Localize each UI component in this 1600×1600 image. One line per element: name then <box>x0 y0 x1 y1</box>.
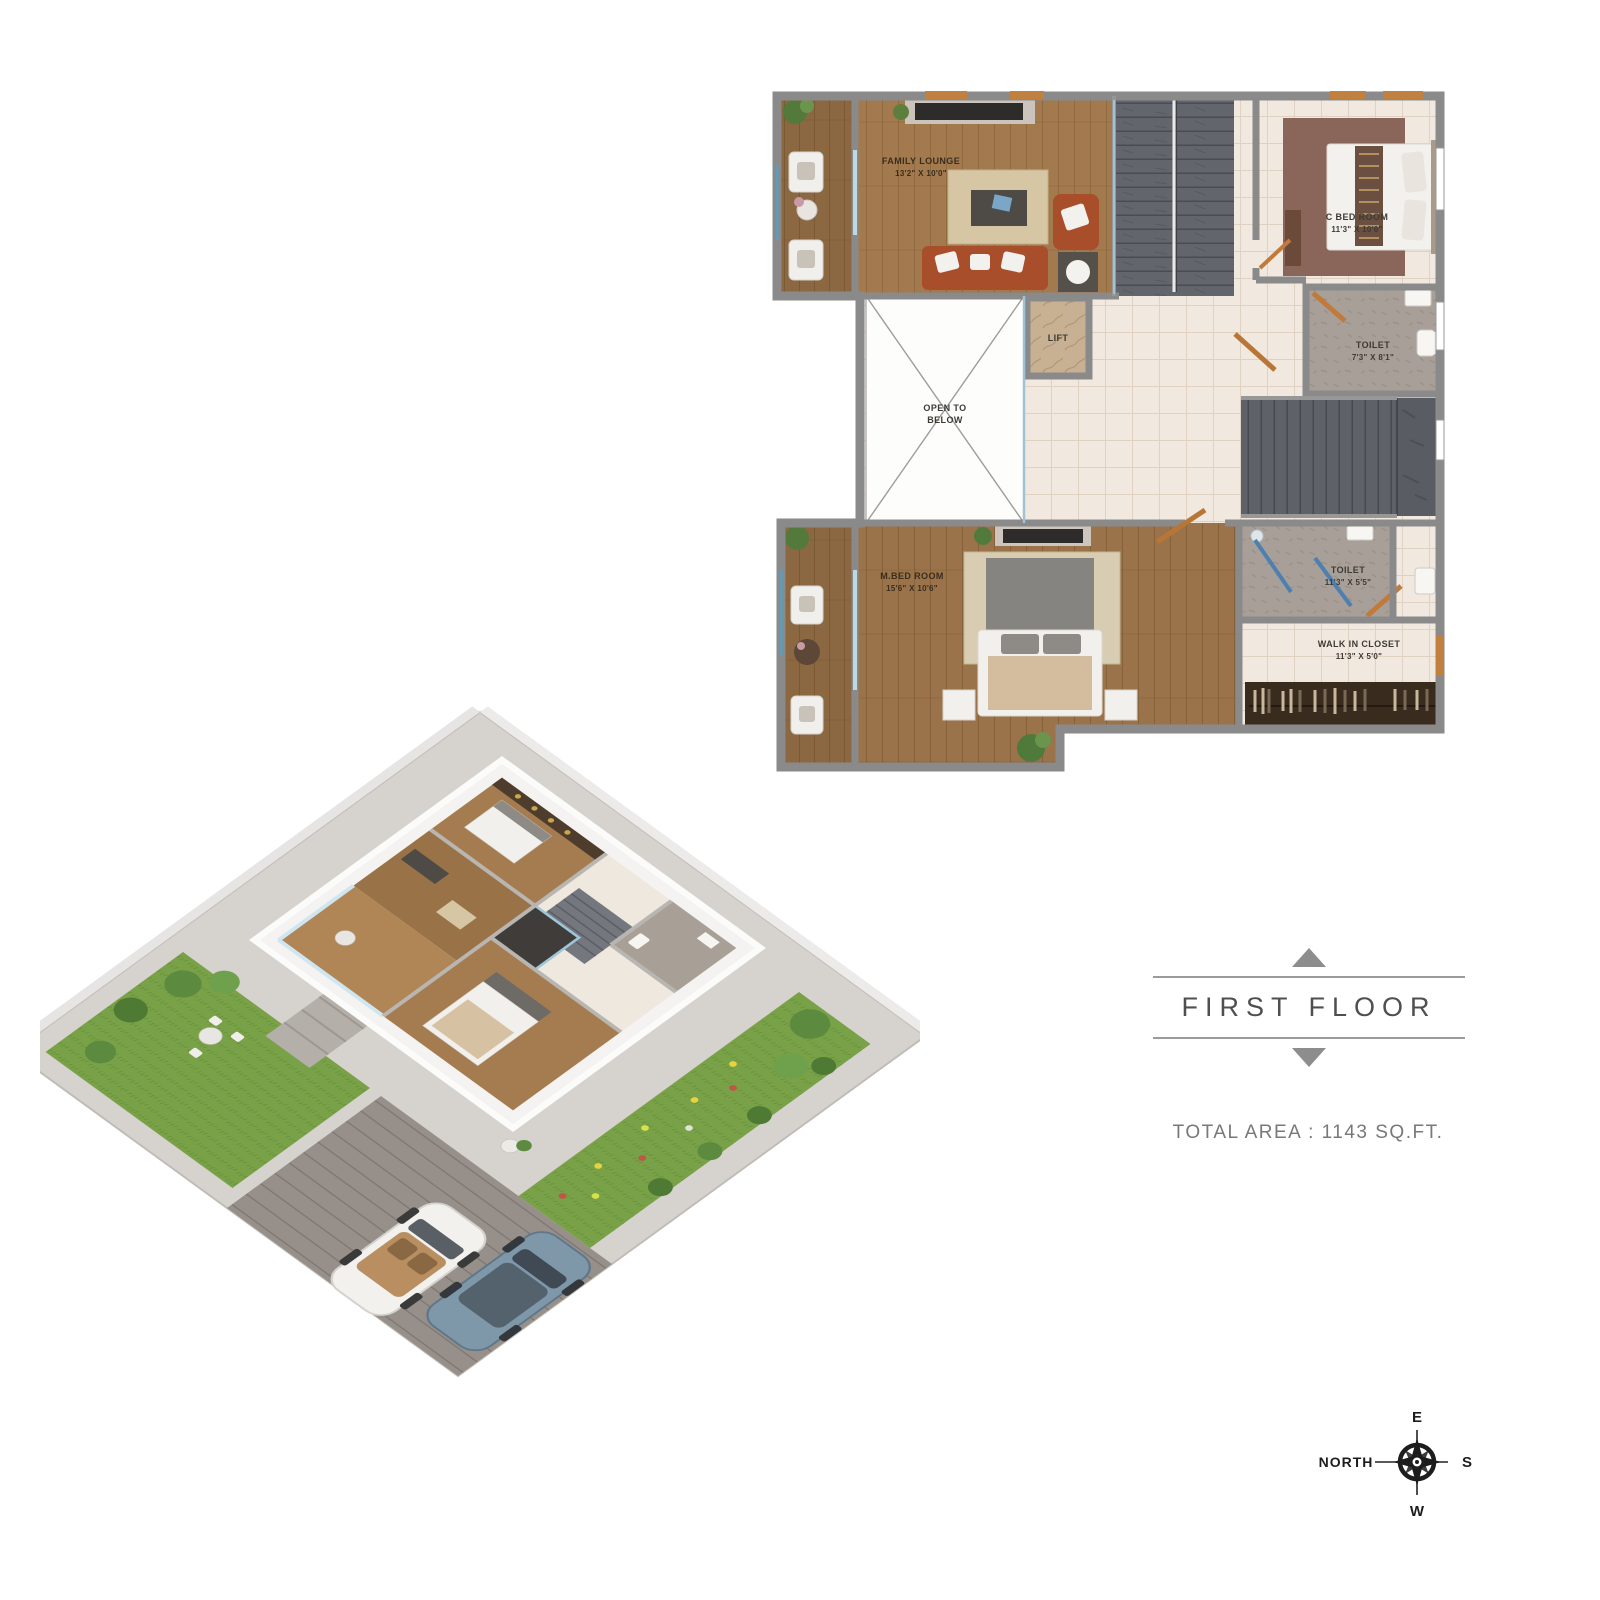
label-toilet1: TOILET <box>1356 340 1390 350</box>
compass-east-label: E <box>1412 1409 1422 1426</box>
walk-in-closet-room <box>1245 682 1440 729</box>
dims-walk-in-closet: 11'3" X 5'0" <box>1336 652 1383 661</box>
total-area-text: TOTAL AREA : 1143 SQ.FT. <box>1108 1122 1508 1144</box>
family-lounge-room <box>855 96 1114 296</box>
label-walk-in-closet: WALK IN CLOSET <box>1318 639 1401 649</box>
banner-rule-top <box>1153 976 1465 978</box>
triangle-down-icon <box>1292 1048 1326 1067</box>
house-3d-render <box>40 640 920 1520</box>
label-lift: LIFT <box>1048 333 1069 343</box>
compass-icon <box>1375 1430 1448 1495</box>
compass-north-label: NORTH <box>1319 1454 1374 1470</box>
floor-title: FIRST FLOOR <box>1153 992 1465 1023</box>
dims-m-bedroom: 15'6" X 10'6" <box>886 584 938 593</box>
triangle-up-icon <box>1292 948 1326 967</box>
label-open-to-below-1: OPEN TO <box>923 403 966 413</box>
dims-toilet2: 11'3" X 5'5" <box>1325 578 1372 587</box>
banner-rule-bottom <box>1153 1037 1465 1039</box>
brochure-page: FAMILY LOUNGE 13'2" X 10'0" C BED ROOM 1… <box>0 0 1600 1600</box>
compass-west-label: W <box>1410 1503 1425 1520</box>
dims-c-bedroom: 11'3" X 10'6" <box>1331 225 1382 234</box>
balcony-top-left <box>777 96 855 296</box>
dims-toilet1: 7'3" X 8'1" <box>1352 353 1394 362</box>
staircase-upper <box>1114 96 1234 296</box>
compass-south-label: S <box>1462 1454 1472 1471</box>
dims-family-lounge: 13'2" X 10'0" <box>895 169 947 178</box>
label-toilet2: TOILET <box>1331 565 1365 575</box>
label-open-to-below-2: BELOW <box>927 415 963 425</box>
label-m-bedroom: M.BED ROOM <box>880 571 944 581</box>
label-family-lounge: FAMILY LOUNGE <box>882 156 960 166</box>
compass-rose: NORTH E S W <box>1280 1388 1515 1548</box>
label-c-bedroom: C BED ROOM <box>1326 212 1389 222</box>
staircase-lower <box>1241 398 1440 516</box>
floor-banner: FIRST FLOOR <box>1153 948 1465 1067</box>
